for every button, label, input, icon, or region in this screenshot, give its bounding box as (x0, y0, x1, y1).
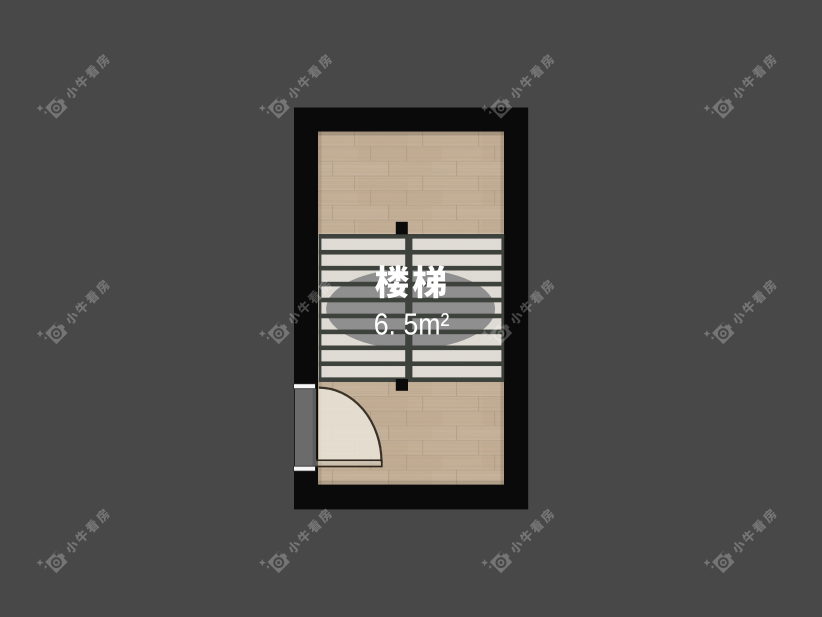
svg-text:6. 5m²: 6. 5m² (374, 308, 450, 342)
